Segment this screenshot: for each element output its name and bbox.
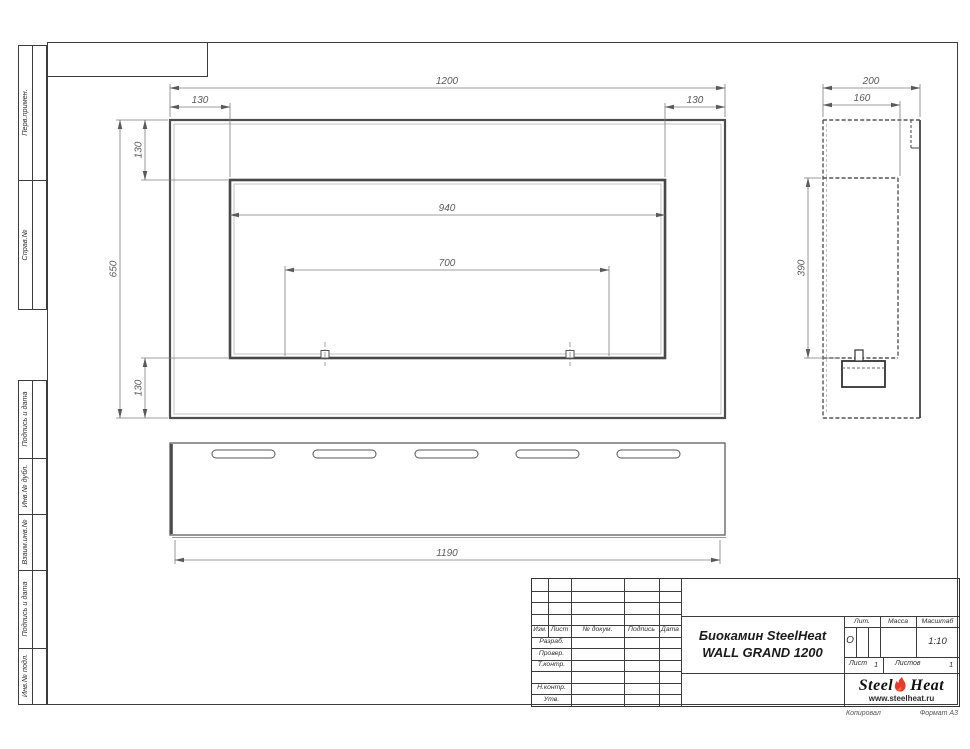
scale-label: Масштаб — [916, 618, 959, 625]
massa-label: Масса — [880, 618, 916, 625]
drawing-sheet: 1200 130 130 940 700 650 130 — [0, 0, 970, 749]
title-line-1: Биокамин SteelHeat — [699, 627, 826, 644]
side-cell-podpis-data-2: Подпись и дата — [18, 570, 32, 648]
row-tkontr: Т.контр. — [532, 661, 571, 668]
sheet-value: 1 — [874, 660, 878, 669]
format-note: Формат А3 — [905, 710, 958, 717]
row-nkontr: Н.контр. — [532, 684, 571, 691]
row-utv: Утв. — [532, 696, 571, 703]
side-cell-perv-primen: Перв.примен. — [18, 45, 32, 180]
row-razrab: Разраб. — [532, 638, 571, 645]
scale-value: 1:10 — [916, 636, 959, 647]
th-list: Лист — [548, 626, 571, 633]
title-line-2: WALL GRAND 1200 — [702, 644, 822, 661]
th-podpis: Подпись — [624, 626, 659, 633]
side-cell-vzaim-inv: Взаим.инв.№ — [18, 514, 32, 570]
side-cell-inv-podl: Инв.№ подл. — [18, 648, 32, 703]
company-logo: Steel Heat www.steelheat.ru — [844, 673, 959, 706]
flame-icon — [894, 677, 909, 694]
logo-steel-text: Steel — [859, 677, 894, 695]
document-title: Биокамин SteelHeat WALL GRAND 1200 — [681, 616, 844, 672]
th-izm: Изм. — [532, 626, 548, 633]
lit-value: О — [844, 635, 856, 646]
logo-url: www.steelheat.ru — [869, 694, 935, 703]
lit-label: Лит. — [844, 618, 880, 625]
side-cell-sprav-no: Справ.№ — [18, 180, 32, 310]
th-data: Дата — [659, 626, 681, 633]
side-cell-inv-dubl: Инв.№ дубл. — [18, 458, 32, 514]
th-doc: № докум. — [571, 626, 624, 633]
sheets-value: 1 — [949, 660, 953, 669]
title-block: Изм. Лист № докум. Подпись Дата Разраб. … — [531, 578, 960, 707]
row-prover: Провер. — [532, 650, 571, 657]
sheets-label: Листов — [895, 660, 921, 667]
side-cell-podpis-data-1: Подпись и дата — [18, 380, 32, 458]
logo-heat-text: Heat — [910, 677, 944, 695]
sheet-label: Лист — [849, 660, 867, 667]
kopiroval-note: Копировал — [846, 710, 881, 717]
top-left-designation-box — [47, 42, 208, 77]
